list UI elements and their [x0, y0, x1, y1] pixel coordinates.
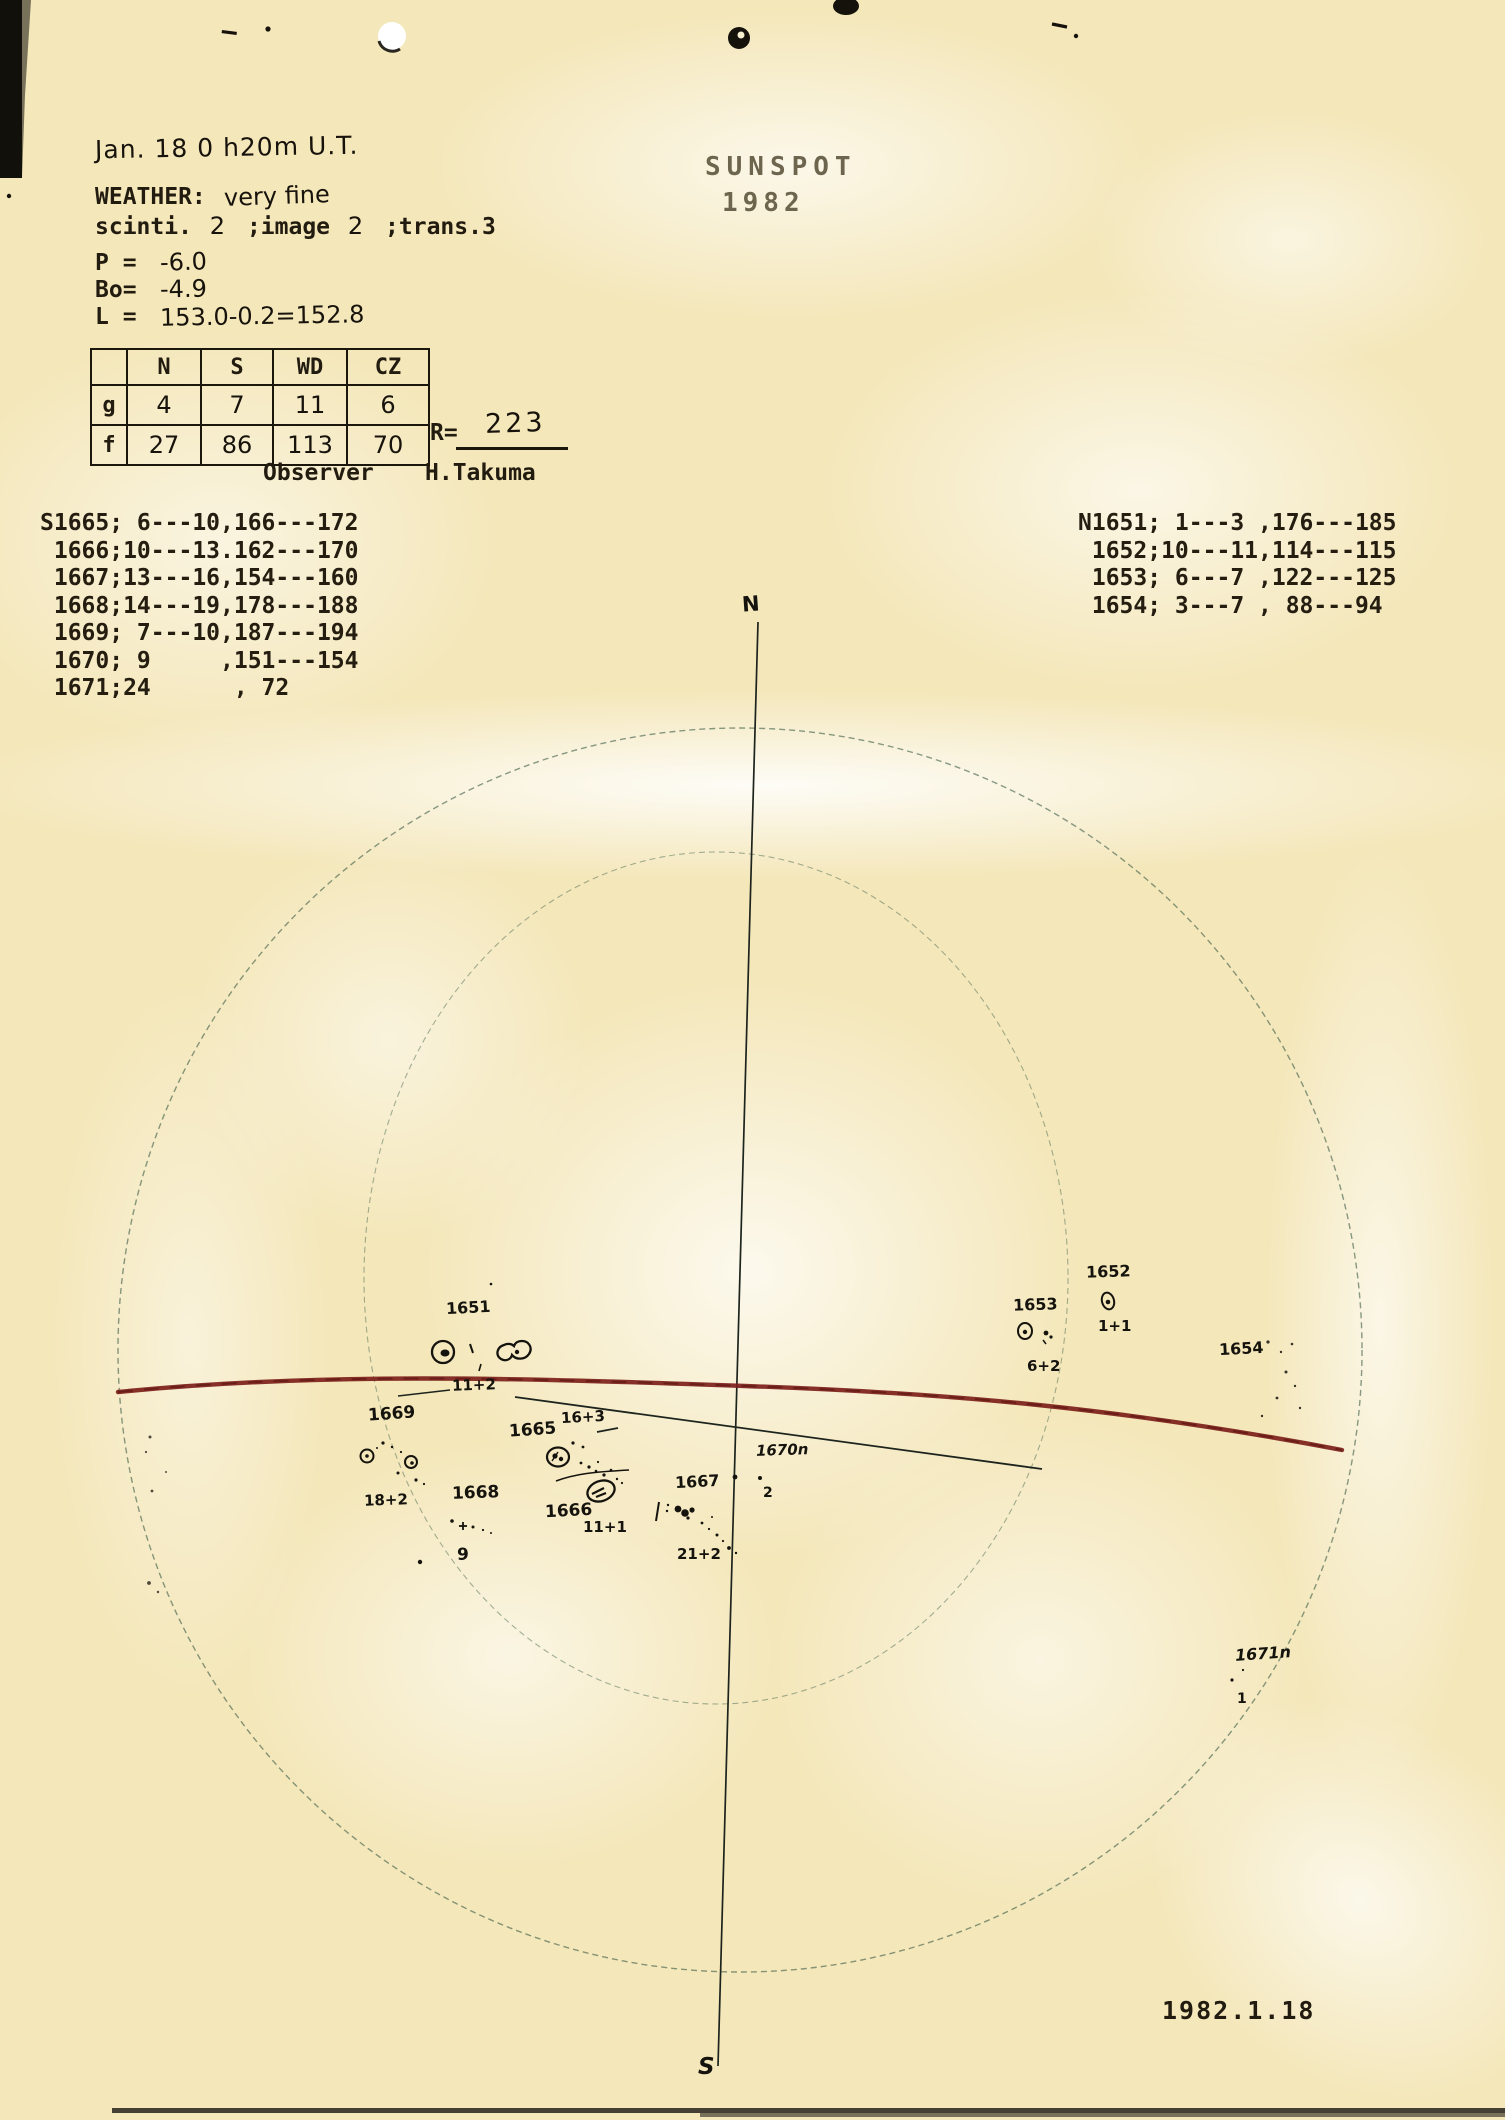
count-label-1670: 2: [763, 1485, 773, 1501]
scanned-sunspot-observation-sheet: Jan. 18 0 h20m U.T. WEATHER: very fine s…: [0, 0, 1505, 2120]
seeing-line: scinti. 2 ;image 2 ;trans.3: [95, 212, 496, 240]
table-row-f: f 27 86 113 70: [91, 425, 429, 465]
cell-g-wd: 11: [273, 385, 347, 425]
cell-g-cz: 6: [347, 385, 429, 425]
group-label-1652: 1652: [1086, 1261, 1131, 1282]
weather-value: very fine: [223, 180, 330, 212]
group-label-1667: 1667: [675, 1471, 720, 1492]
list-line: 1669; 7---10,187---194: [40, 620, 359, 648]
col-header-wd: WD: [273, 349, 347, 385]
col-header-s: S: [201, 349, 273, 385]
row-label-g: g: [91, 385, 127, 425]
image-value: 2: [348, 212, 363, 240]
sheet-title: SUNSPOT: [705, 152, 857, 182]
count-label-1652: 1+1: [1098, 1317, 1131, 1335]
count-label-1667: 21+2: [677, 1545, 721, 1563]
south-pole-label: S: [698, 2054, 715, 2080]
scinti-label: scinti.: [95, 214, 192, 240]
list-line: 1666;10---13.162---170: [40, 538, 359, 566]
list-line: 1652;10---11,114---115: [1078, 538, 1397, 566]
list-line: 1654; 3---7 , 88---94: [1078, 593, 1397, 621]
cell-g-n: 4: [127, 385, 201, 425]
observer-label: Observer: [263, 460, 374, 486]
observation-datetime: Jan. 18 0 h20m U.T.: [95, 131, 359, 165]
label-tick-line: [597, 1428, 618, 1432]
relative-number-value: 223: [484, 407, 546, 440]
relative-number-underline: [456, 447, 568, 450]
table-row-g: g 4 7 11 6: [91, 385, 429, 425]
north-groups-list: N1651; 1---3 ,176---185 1652;10---11,114…: [1078, 510, 1397, 620]
b0-angle-line: Bo= -4.9: [95, 275, 207, 303]
table-header-row: N S WD CZ: [91, 349, 429, 385]
sheet-title-year: 1982: [722, 188, 805, 218]
cell-f-wd: 113: [273, 425, 347, 465]
sunspot-drawing-1654: [1261, 1340, 1301, 1417]
observer-name: H.Takuma: [425, 460, 536, 486]
sunspot-drawing-1665: [547, 1441, 623, 1484]
list-line: N1651; 1---3 ,176---185: [1078, 510, 1397, 538]
sunspot-counts-table: N S WD CZ g 4 7 11 6 f 27 86 113 70: [90, 348, 430, 466]
group-label-1671: 1671n: [1234, 1642, 1291, 1665]
sunspot-drawing-1666: [556, 1470, 629, 1505]
group-label-1653: 1653: [1013, 1294, 1058, 1315]
bo-value: -4.9: [160, 275, 207, 304]
count-label-1653: 6+2: [1027, 1357, 1060, 1375]
group-label-1665: 1665: [508, 1418, 557, 1441]
diagram-date: 1982.1.18: [1162, 1996, 1315, 2025]
inner-reference-circle: [364, 852, 1068, 1704]
trans-label: ;trans.3: [385, 214, 496, 240]
label-tick-line: [398, 1390, 450, 1396]
south-groups-list: S1665; 6---10,166---172 1666;10---13.162…: [40, 510, 359, 703]
image-label: ;image: [247, 214, 330, 240]
count-label-1671: 1: [1237, 1691, 1247, 1707]
count-label-1665: 16+3: [561, 1407, 606, 1427]
l-value: 153.0-0.2=152.8: [160, 300, 365, 332]
group-label-1670: 1670n: [756, 1440, 809, 1460]
col-header-cz: CZ: [347, 349, 429, 385]
limb-specks: [145, 1436, 167, 1594]
cell-g-s: 7: [201, 385, 273, 425]
p-label: P =: [95, 250, 137, 276]
list-line: 1653; 6---7 ,122---125: [1078, 565, 1397, 593]
list-line: 1667;13---16,154---160: [40, 565, 359, 593]
sunspot-drawing-1671: [1230, 1669, 1244, 1682]
outer-disk-circle: [118, 728, 1362, 1972]
count-label-1669: 18+2: [364, 1490, 408, 1510]
p-angle-line: P = -6.0: [95, 248, 207, 276]
cell-f-n: 27: [127, 425, 201, 465]
equator-red-line: [118, 1379, 1342, 1451]
col-header-n: N: [127, 349, 201, 385]
sunspot-drawing-1652: [1100, 1291, 1116, 1311]
sunspot-drawing-1668: [418, 1519, 492, 1564]
l0-line: L = 153.0-0.2=152.8: [95, 302, 365, 330]
list-line: S1665; 6---10,166---172: [40, 510, 359, 538]
cell-f-s: 86: [201, 425, 273, 465]
bo-label: Bo=: [95, 277, 137, 303]
cell-f-cz: 70: [347, 425, 429, 465]
sunspot-drawing-1653: [1018, 1323, 1053, 1344]
weather-label: WEATHER:: [95, 184, 206, 210]
relative-number-label: R=: [430, 420, 458, 446]
list-line: 1668;14---19,178---188: [40, 593, 359, 621]
count-label-1668: 9: [457, 1545, 469, 1565]
group-label-1651: 1651: [446, 1297, 491, 1318]
group-label-1668: 1668: [452, 1482, 500, 1504]
count-label-1651: 11+2: [452, 1375, 496, 1395]
corner-cell: [91, 349, 127, 385]
scinti-value: 2: [210, 212, 225, 240]
sunspot-drawing-1651: [432, 1283, 531, 1371]
list-line: 1671;24 , 72: [40, 675, 359, 703]
p-value: -6.0: [160, 247, 208, 277]
list-line: 1670; 9 ,151---154: [40, 648, 359, 676]
group-label-1654: 1654: [1219, 1338, 1264, 1359]
group-label-1669: 1669: [367, 1402, 416, 1425]
count-label-1666: 11+1: [583, 1518, 627, 1536]
central-meridian-line: [718, 622, 758, 2066]
l-label: L =: [95, 304, 137, 330]
north-pole-label: N: [741, 591, 760, 616]
weather-line: WEATHER: very fine: [95, 182, 329, 210]
row-label-f: f: [91, 425, 127, 465]
sunspot-drawing-1670: [733, 1475, 762, 1480]
